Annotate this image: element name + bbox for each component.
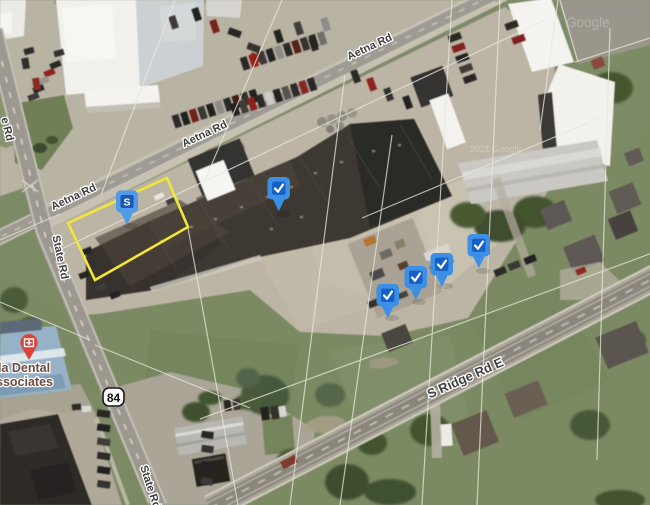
svg-text:2021 Google: 2021 Google — [470, 144, 522, 154]
svg-text:84: 84 — [107, 391, 121, 405]
svg-text:la Dental: la Dental — [0, 361, 50, 375]
svg-text:Google: Google — [566, 15, 610, 30]
svg-text:S: S — [123, 197, 130, 209]
svg-text:ssociates: ssociates — [0, 375, 53, 389]
